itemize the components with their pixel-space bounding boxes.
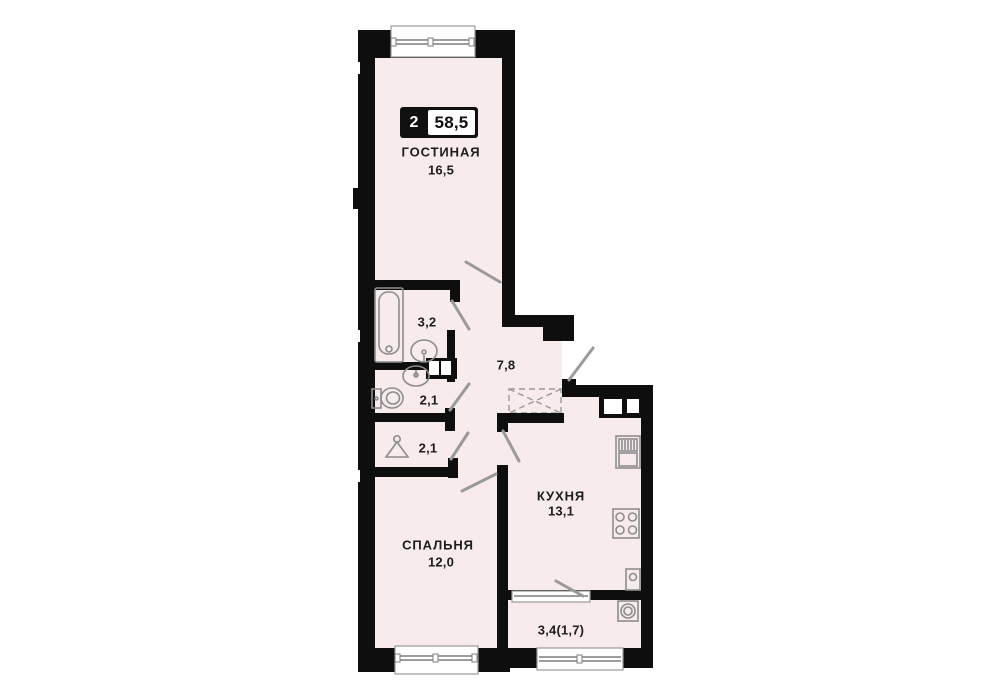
apartment-badge: 2 58,5 — [400, 107, 478, 138]
badge-total-area: 58,5 — [435, 113, 469, 133]
room-area-wardrobe: 2,1 — [419, 442, 438, 455]
floorplan-drawing — [0, 0, 1006, 700]
room-area-bedroom: 12,0 — [428, 556, 454, 569]
badge-room-count: 2 — [400, 114, 428, 132]
room-area-wc: 2,1 — [420, 394, 439, 407]
room-label-living: ГОСТИНАЯ — [402, 146, 481, 159]
room-label-kitchen: КУХНЯ — [537, 490, 585, 503]
room-area-kitchen: 13,1 — [548, 505, 574, 518]
floorplan-canvas: 2 58,5 ГОСТИНАЯ 16,5 3,2 7,8 2,1 2,1 СПА… — [0, 0, 1006, 700]
window — [395, 646, 478, 674]
room-area-bathroom: 3,2 — [418, 316, 437, 329]
room-area-hallway: 7,8 — [497, 359, 516, 372]
room-area-balcony: 3,4(1,7) — [538, 624, 584, 637]
room-label-bedroom: СПАЛЬНЯ — [402, 539, 474, 552]
room-area-living: 16,5 — [428, 164, 454, 177]
window — [537, 648, 623, 670]
window — [391, 26, 475, 57]
badge-total-area-box: 58,5 — [428, 110, 475, 135]
